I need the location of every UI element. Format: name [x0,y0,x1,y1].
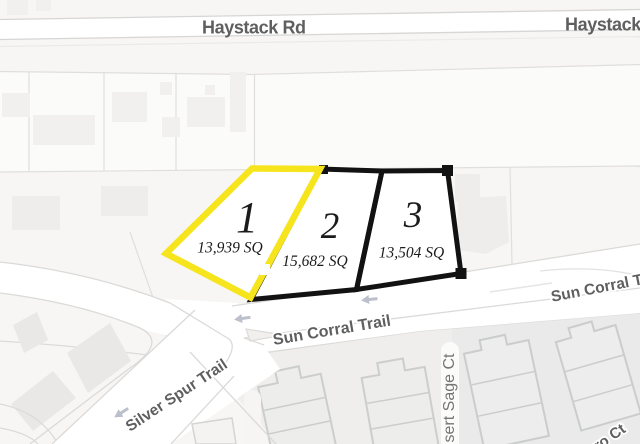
svg-text:13,504 SQ: 13,504 SQ [379,245,444,262]
svg-text:15,682 SQ: 15,682 SQ [282,253,347,270]
svg-text:2: 2 [321,206,340,247]
svg-text:3: 3 [403,195,423,236]
svg-text:13,939 SQ: 13,939 SQ [197,240,262,257]
svg-text:sert Sage Ct: sert Sage Ct [441,353,458,442]
svg-text:Haystack Rd: Haystack Rd [202,18,306,38]
svg-text:Haystack: Haystack [565,15,640,35]
